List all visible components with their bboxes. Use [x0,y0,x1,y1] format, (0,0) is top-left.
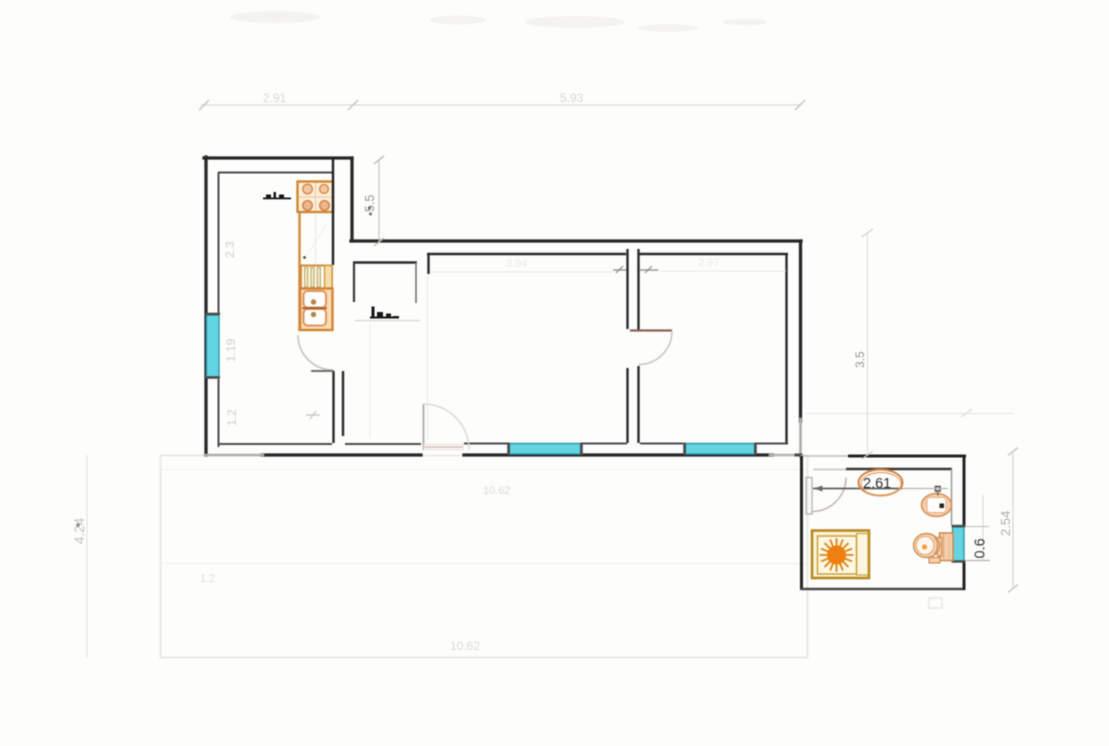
svg-text:2.3: 2.3 [223,241,237,258]
svg-text:2.97: 2.97 [698,257,719,269]
svg-text:3.5: 3.5 [853,351,867,368]
svg-text:1.2: 1.2 [225,409,239,426]
svg-text:2.91: 2.91 [263,91,287,105]
svg-text:2.54: 2.54 [998,511,1013,536]
svg-text:1.19: 1.19 [224,338,238,362]
svg-text:3.94: 3.94 [506,258,527,270]
svg-text:0.6: 0.6 [973,538,989,558]
svg-text:5.93: 5.93 [560,91,584,105]
svg-text:10.62: 10.62 [450,639,480,653]
svg-text:10.62: 10.62 [483,485,511,497]
svg-text:2.61: 2.61 [863,476,891,492]
svg-text:1.2: 1.2 [200,573,215,585]
svg-text:4.24: 4.24 [72,517,87,544]
